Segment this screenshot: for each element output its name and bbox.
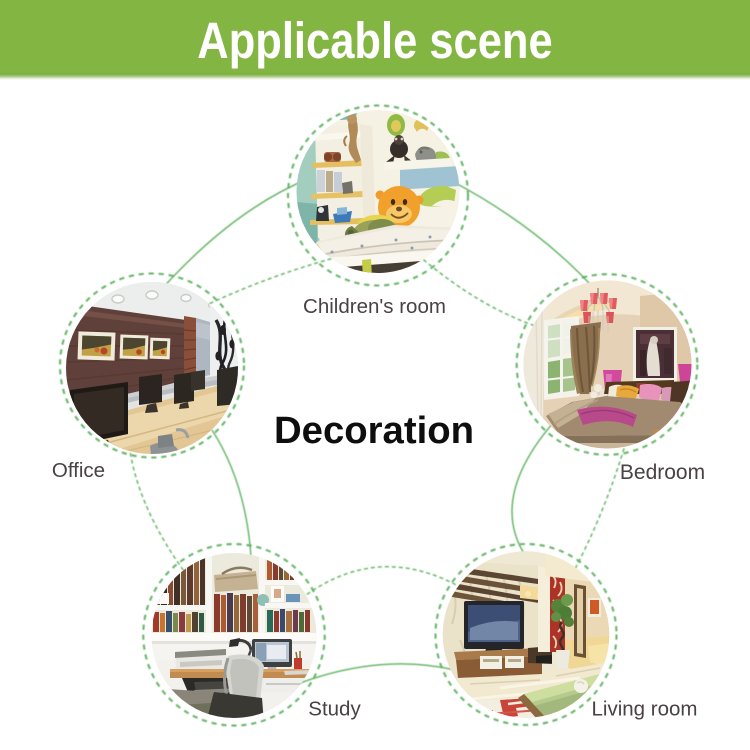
svg-text:Study: Study <box>308 698 361 721</box>
svg-text:Bedroom: Bedroom <box>620 461 705 484</box>
svg-text:Living room: Living room <box>592 698 698 721</box>
svg-text:Decoration: Decoration <box>274 409 474 452</box>
svg-text:Office: Office <box>52 459 105 482</box>
svg-text:Children's room: Children's room <box>303 295 446 318</box>
